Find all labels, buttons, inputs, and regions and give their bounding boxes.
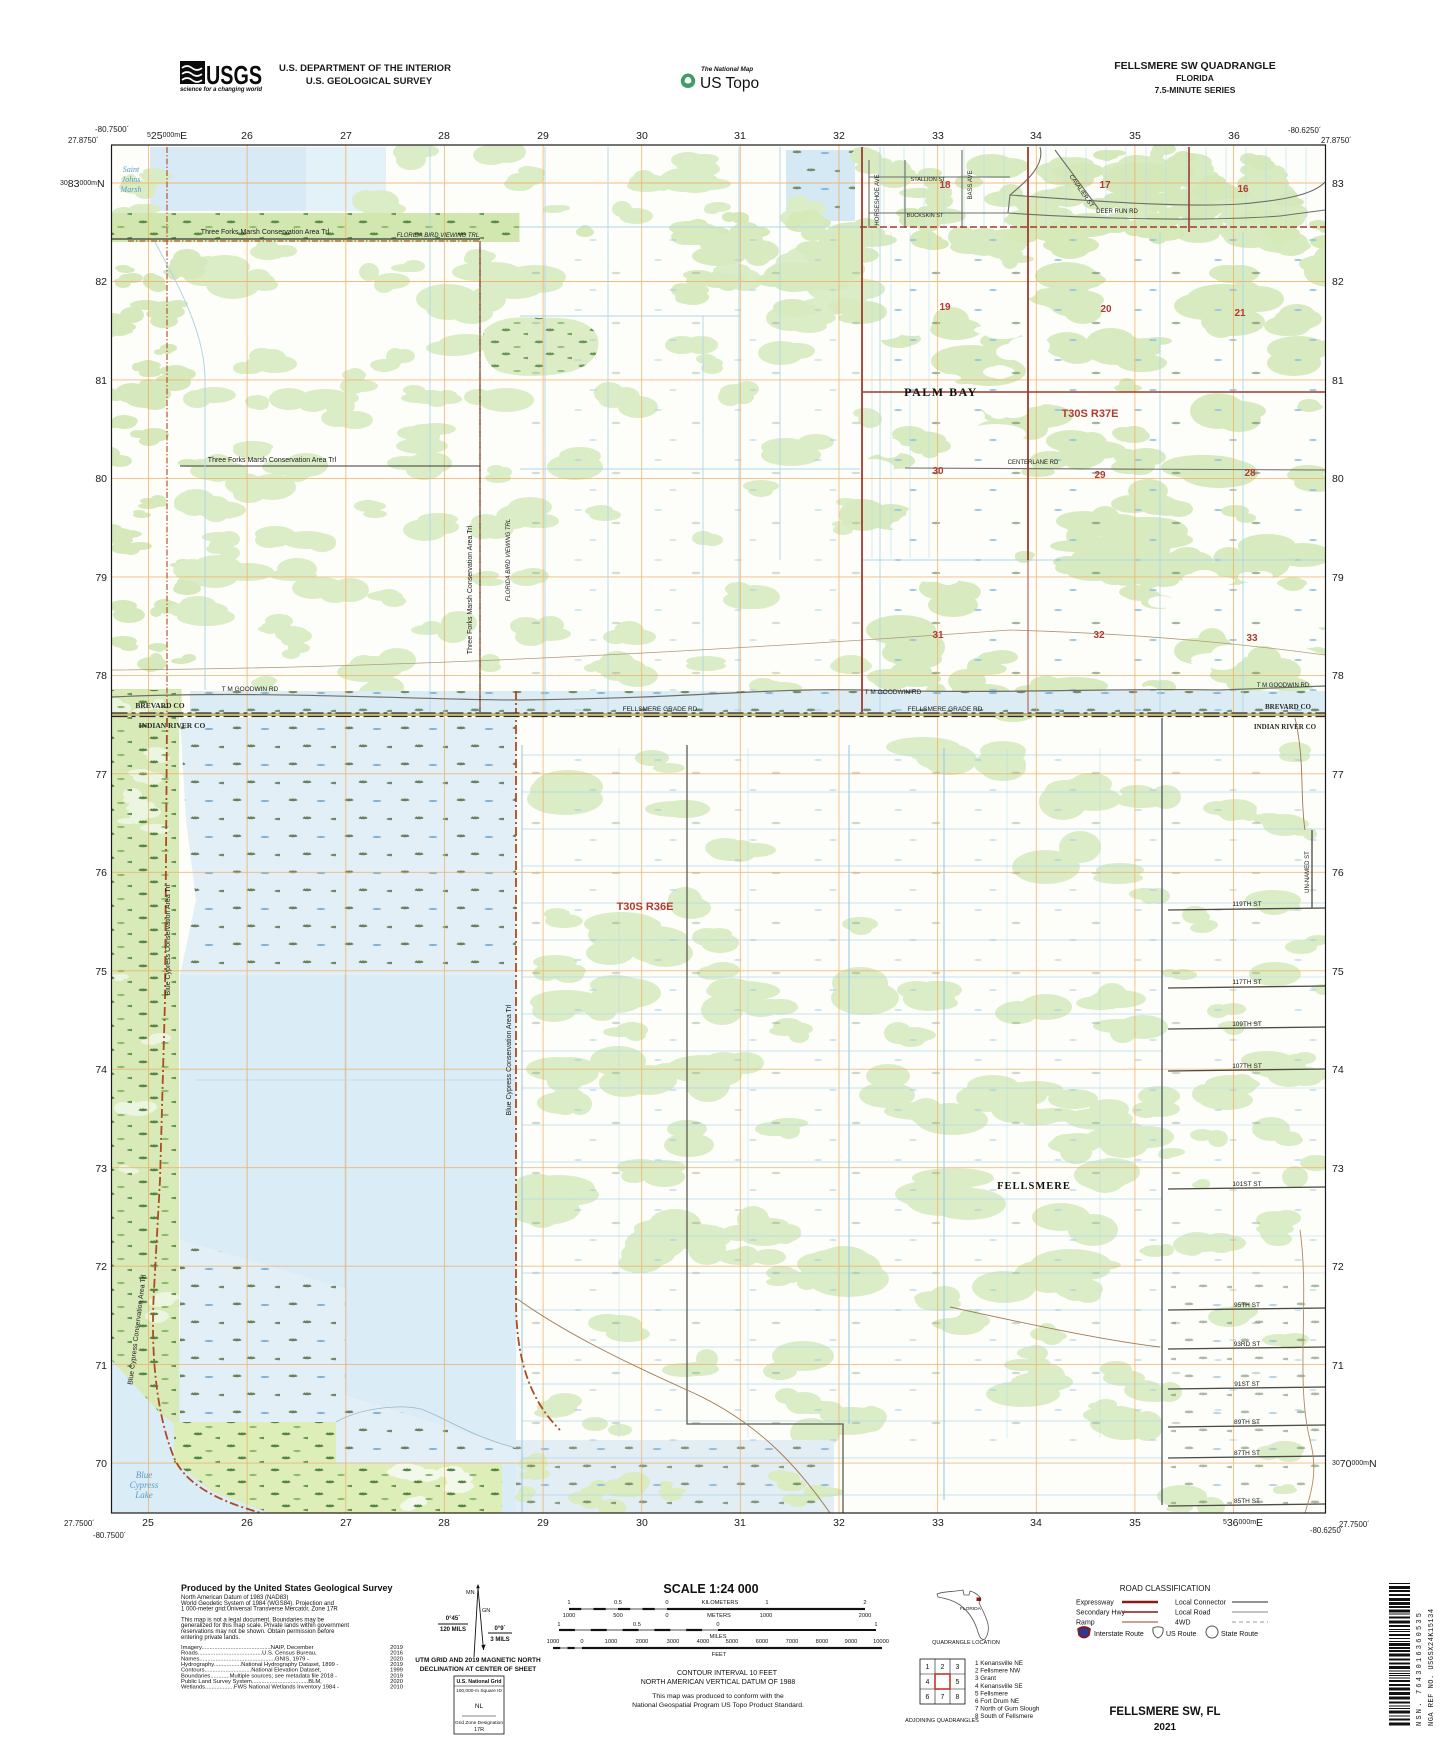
svg-text:33: 33 [1246,633,1258,644]
svg-text:5: 5 [956,1679,960,1686]
svg-text:0: 0 [665,1613,668,1619]
svg-text:METERS: METERS [707,1613,731,1619]
svg-text:36: 36 [1228,130,1240,142]
svg-text:6000: 6000 [756,1639,769,1645]
svg-text:4 Kenansville SE: 4 Kenansville SE [975,1683,1023,1690]
svg-text:Saint: Saint [123,165,140,174]
svg-text:FLORIDA BIRD VIEWING TRL: FLORIDA BIRD VIEWING TRL [397,233,479,239]
svg-text:87TH ST: 87TH ST [1234,1450,1260,1457]
svg-text:77: 77 [95,769,107,781]
svg-text:80: 80 [95,473,107,485]
svg-text:85TH ST: 85TH ST [1234,1498,1260,1505]
svg-text:FELLSMERE SW QUADRANGLE: FELLSMERE SW QUADRANGLE [1114,60,1276,72]
svg-text:NL: NL [475,1703,484,1710]
svg-text:33: 33 [932,130,944,142]
svg-text:Local Connector: Local Connector [1175,1600,1227,1607]
svg-text:Wetlands..................FWS: Wetlands..................FWS National W… [181,1685,339,1691]
svg-text:107TH ST: 107TH ST [1232,1063,1262,1070]
svg-text:95TH ST: 95TH ST [1234,1302,1260,1309]
svg-text:U.S. National Grid: U.S. National Grid [456,1679,501,1685]
svg-text:31: 31 [734,130,746,142]
svg-text:28: 28 [438,1517,450,1529]
svg-text:MILES: MILES [709,1634,726,1640]
svg-text:Three Forks Marsh Conservation: Three Forks Marsh Conservation Area Trl [467,525,474,654]
svg-text:73: 73 [95,1163,107,1175]
svg-text:73: 73 [1332,1163,1344,1175]
svg-text:75: 75 [1332,966,1344,978]
svg-text:30: 30 [636,130,648,142]
svg-text:National Geospatial Program US: National Geospatial Program US Topo Prod… [632,1702,804,1709]
svg-text:T30S R36E: T30S R36E [617,901,674,913]
svg-text:U.S. DEPARTMENT OF THE INTERIO: U.S. DEPARTMENT OF THE INTERIOR [279,63,451,74]
svg-text:HORSESHOE AVE: HORSESHOE AVE [875,174,881,225]
svg-text:QUADRANGLE LOCATION: QUADRANGLE LOCATION [932,1640,1000,1646]
svg-text:FEET: FEET [712,1652,727,1658]
svg-text:1: 1 [765,1600,768,1606]
svg-text:Blue Cypress Conservation Area: Blue Cypress Conservation Area Trl [506,1004,513,1115]
svg-text:Three Forks Marsh Conservation: Three Forks Marsh Conservation Area Trl [201,229,330,236]
svg-text:17R: 17R [474,1727,484,1733]
svg-text:71: 71 [1332,1360,1344,1372]
svg-text:2: 2 [941,1664,945,1671]
svg-text:100,000-m Square ID: 100,000-m Square ID [456,1688,502,1694]
svg-text:BASS AVE: BASS AVE [968,171,974,200]
svg-text:32: 32 [1093,630,1105,641]
svg-text:2010: 2010 [390,1685,403,1691]
svg-text:KILOMETERS: KILOMETERS [702,1600,739,1606]
svg-text:1: 1 [874,1622,877,1628]
svg-text:74: 74 [95,1064,107,1076]
svg-text:16: 16 [1237,184,1249,195]
svg-text:2000: 2000 [636,1639,649,1645]
svg-text:81: 81 [95,375,107,387]
svg-text:science for a changing world: science for a changing world [180,86,262,93]
svg-text:NORTH AMERICAN VERTICAL DATUM: NORTH AMERICAN VERTICAL DATUM OF 1988 [641,1679,796,1686]
svg-text:29: 29 [1094,470,1106,481]
svg-text:BREVARD CO: BREVARD CO [135,701,184,710]
svg-text:6: 6 [926,1694,930,1701]
svg-text:CONTOUR INTERVAL 10 FEET: CONTOUR INTERVAL 10 FEET [677,1670,778,1677]
svg-text:78: 78 [95,670,107,682]
svg-text:GN: GN [482,1608,490,1614]
svg-text:18: 18 [939,180,951,191]
svg-text:Ramp: Ramp [1076,1620,1095,1627]
svg-text:27: 27 [340,1517,352,1529]
svg-text:ROAD CLASSIFICATION: ROAD CLASSIFICATION [1120,1584,1211,1593]
svg-text:4WD: 4WD [1175,1620,1191,1627]
svg-text:Interstate Route: Interstate Route [1094,1631,1144,1638]
svg-text:Three Forks Marsh Conservation: Three Forks Marsh Conservation Area Trl [208,457,337,464]
svg-text:32: 32 [833,130,845,142]
svg-text:93RD ST: 93RD ST [1234,1341,1261,1348]
svg-text:FELLSMERE GRADE RD: FELLSMERE GRADE RD [623,706,698,713]
svg-text:1: 1 [557,1622,560,1628]
svg-text:Expressway: Expressway [1076,1600,1114,1607]
svg-text:Grid Zone Designation: Grid Zone Designation [455,1720,503,1726]
svg-text:4: 4 [926,1679,930,1686]
svg-text:500: 500 [613,1613,623,1619]
svg-text:83: 83 [1332,178,1344,190]
svg-text:30: 30 [636,1517,648,1529]
svg-text:77: 77 [1332,769,1344,781]
svg-text:31: 31 [932,630,944,641]
svg-text:81: 81 [1332,375,1344,387]
svg-text:T M GOODWIN RD: T M GOODWIN RD [222,686,279,693]
svg-text:8: 8 [956,1694,960,1701]
svg-text:7000: 7000 [786,1639,799,1645]
svg-text:20: 20 [1100,304,1112,315]
svg-text:29: 29 [537,130,549,142]
svg-text:82: 82 [95,276,107,288]
svg-text:7.5-MINUTE SERIES: 7.5-MINUTE SERIES [1155,85,1236,95]
svg-text:5000: 5000 [726,1639,739,1645]
svg-text:78: 78 [1332,670,1344,682]
svg-text:31: 31 [734,1517,746,1529]
svg-text:29: 29 [537,1517,549,1529]
svg-text:-80.6250´: -80.6250´ [1288,126,1321,135]
svg-text:U.S. GEOLOGICAL SURVEY: U.S. GEOLOGICAL SURVEY [306,76,433,87]
svg-text:28: 28 [438,130,450,142]
svg-text:76: 76 [95,867,107,879]
svg-text:6 Fort Drum NE: 6 Fort Drum NE [975,1698,1019,1705]
svg-text:120 MILS: 120 MILS [440,1627,466,1633]
svg-text:0°45´: 0°45´ [446,1616,460,1622]
svg-text:1000: 1000 [760,1613,773,1619]
svg-text:0: 0 [580,1639,583,1645]
svg-text:32: 32 [833,1517,845,1529]
svg-text:27.8750´: 27.8750´ [68,136,99,145]
svg-text:FLORIDA BIRD VIEWING TRL: FLORIDA BIRD VIEWING TRL [506,519,512,601]
svg-text:-80.7500´: -80.7500´ [93,1531,126,1540]
svg-text:21: 21 [1234,308,1246,319]
svg-text:4000: 4000 [697,1639,710,1645]
svg-text:Blue Cypress Conservation Area: Blue Cypress Conservation Area Trl [165,884,172,995]
svg-text:101ST ST: 101ST ST [1232,1181,1261,1188]
svg-text:74: 74 [1332,1064,1344,1076]
svg-text:Secondary Hwy: Secondary Hwy [1076,1610,1126,1617]
svg-text:72: 72 [95,1261,107,1273]
svg-text:FELLSMERE GRADE RD: FELLSMERE GRADE RD [908,706,983,713]
svg-text:27.7500´: 27.7500´ [64,1519,95,1528]
svg-text:80: 80 [1332,473,1344,485]
svg-text:0.5: 0.5 [614,1600,622,1606]
svg-text:25: 25 [142,1517,154,1529]
svg-text:Marsh: Marsh [120,185,142,194]
svg-text:3 MILS: 3 MILS [490,1637,509,1643]
svg-text:MN: MN [466,1590,475,1596]
svg-text:27.7500´: 27.7500´ [1339,1520,1370,1529]
svg-text:FELLSMERE SW, FL: FELLSMERE SW, FL [1109,1706,1220,1718]
svg-text:1: 1 [567,1600,570,1606]
svg-text:ADJOINING QUADRANGLES: ADJOINING QUADRANGLES [905,1718,979,1724]
svg-text:2000: 2000 [859,1613,872,1619]
svg-text:8 South of Fellsmere: 8 South of Fellsmere [975,1713,1034,1720]
svg-text:10000: 10000 [873,1639,889,1645]
svg-text:70: 70 [95,1458,107,1470]
svg-text:91ST ST: 91ST ST [1234,1381,1260,1388]
svg-text:35: 35 [1129,1517,1141,1529]
svg-text:-80.7500´: -80.7500´ [95,125,129,134]
svg-text:30: 30 [932,466,944,477]
svg-text:27: 27 [340,130,352,142]
svg-text:0: 0 [716,1622,719,1628]
svg-text:T30S R37E: T30S R37E [1062,408,1119,420]
svg-text:7: 7 [941,1694,945,1701]
svg-text:75: 75 [95,966,107,978]
svg-text:27.8750´: 27.8750´ [1321,136,1352,145]
svg-text:82: 82 [1332,276,1344,288]
svg-text:76: 76 [1332,867,1344,879]
svg-text:FELLSMERE: FELLSMERE [997,1181,1071,1192]
svg-text:17: 17 [1099,180,1111,191]
svg-text:1 Kenansville NE: 1 Kenansville NE [975,1660,1023,1667]
svg-text:3 Grant: 3 Grant [975,1675,996,1682]
svg-text:NGA REF NO. USGSX24K15134: NGA REF NO. USGSX24K15134 [1428,1608,1436,1726]
svg-text:UN-NAMED ST: UN-NAMED ST [1305,851,1311,893]
svg-text:79: 79 [1332,572,1344,584]
svg-text:79: 79 [95,572,107,584]
svg-text:2: 2 [863,1600,866,1606]
svg-text:Johns: Johns [122,175,141,184]
svg-text:DEER RUN RD: DEER RUN RD [1096,209,1138,215]
svg-text:entering private lands.: entering private lands. [181,1635,240,1641]
svg-text:BUCKSKIN ST: BUCKSKIN ST [907,213,944,219]
svg-text:119TH ST: 119TH ST [1232,901,1261,908]
svg-text:The National Map: The National Map [701,66,753,73]
svg-text:SCALE 1:24 000: SCALE 1:24 000 [663,1582,758,1596]
svg-text:1000: 1000 [605,1639,618,1645]
svg-text:5 Fellsmere: 5 Fellsmere [975,1690,1008,1697]
svg-text:DECLINATION AT CENTER OF SHEET: DECLINATION AT CENTER OF SHEET [420,1666,537,1673]
svg-text:Blue: Blue [136,1470,153,1480]
svg-text:35: 35 [1129,130,1141,142]
svg-text:PALM BAY: PALM BAY [904,385,978,399]
svg-text:UTM GRID AND 2019 MAGNETIC NOR: UTM GRID AND 2019 MAGNETIC NORTH [415,1657,541,1664]
svg-text:0°9´: 0°9´ [494,1626,505,1632]
svg-text:State Route: State Route [1221,1631,1258,1638]
svg-text:T M GOODWIN RD: T M GOODWIN RD [865,689,922,696]
svg-text:US Topo: US Topo [700,75,759,92]
svg-text:NSN. 7643016360535: NSN. 7643016360535 [1416,1611,1424,1726]
svg-text:26: 26 [241,130,253,142]
svg-text:2 Fellsmere NW: 2 Fellsmere NW [975,1668,1020,1675]
svg-text:FLORIDA: FLORIDA [1176,73,1214,83]
svg-text:19: 19 [939,302,951,313]
svg-text:26: 26 [241,1517,253,1529]
svg-text:1: 1 [926,1664,930,1671]
svg-text:34: 34 [1030,130,1042,142]
svg-text:71: 71 [95,1360,107,1372]
svg-text:117TH ST: 117TH ST [1232,979,1261,986]
svg-text:US Route: US Route [1166,1631,1196,1638]
svg-text:1 000-meter grid:Universal Tra: 1 000-meter grid:Universal Transverse Me… [181,1607,338,1613]
svg-text:3: 3 [956,1664,960,1671]
svg-text:3000: 3000 [667,1639,680,1645]
svg-text:1000: 1000 [547,1639,560,1645]
svg-text:8000: 8000 [816,1639,829,1645]
svg-text:Produced by the United States: Produced by the United States Geological… [181,1583,393,1593]
svg-text:0.5: 0.5 [633,1622,641,1628]
svg-text:9000: 9000 [845,1639,858,1645]
svg-text:FLORIDA: FLORIDA [960,1606,982,1612]
svg-text:7 North of Gum Slough: 7 North of Gum Slough [975,1706,1040,1713]
svg-text:This map was produced to confo: This map was produced to conform with th… [652,1693,784,1700]
svg-text:109TH ST: 109TH ST [1232,1021,1262,1028]
svg-text:2021: 2021 [1154,1722,1177,1733]
svg-text:INDIAN RIVER CO: INDIAN RIVER CO [139,721,206,730]
svg-text:Lake: Lake [134,1490,153,1500]
svg-text:Cypress: Cypress [130,1480,159,1490]
svg-text:28: 28 [1244,468,1256,479]
svg-text:BREVARD CO: BREVARD CO [1265,703,1312,711]
svg-text:34: 34 [1030,1517,1042,1529]
svg-text:INDIAN RIVER CO: INDIAN RIVER CO [1254,723,1317,731]
svg-text:CENTERLANE RD: CENTERLANE RD [1008,460,1059,466]
svg-text:0: 0 [665,1600,668,1606]
svg-text:Local Road: Local Road [1175,1610,1211,1617]
svg-text:72: 72 [1332,1261,1344,1273]
svg-text:89TH ST: 89TH ST [1234,1419,1260,1426]
svg-text:T M GOODWIN RD: T M GOODWIN RD [1257,683,1310,689]
svg-text:1000: 1000 [563,1613,576,1619]
svg-text:33: 33 [932,1517,944,1529]
